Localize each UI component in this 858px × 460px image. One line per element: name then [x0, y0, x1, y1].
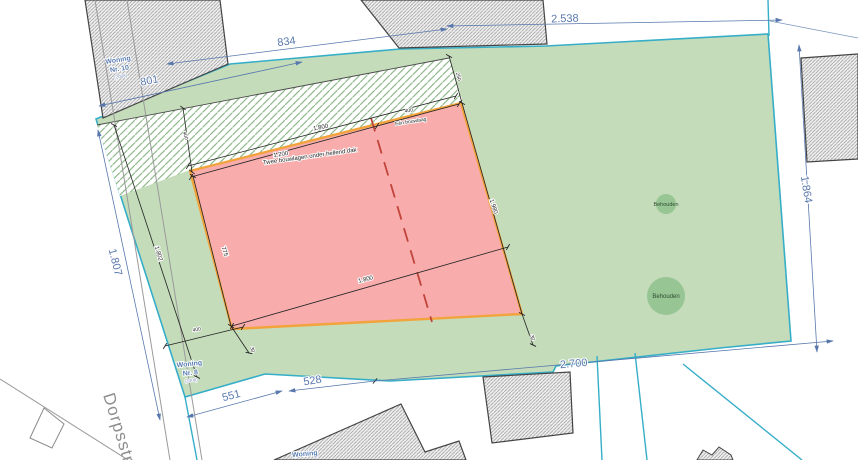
boundary-line-bottom-diagonal	[683, 364, 802, 460]
tree-label-small: Behouden	[653, 202, 678, 208]
site-plan-drawing: 834 801 2.538 1.864 1.807 551 528 2.700 …	[0, 0, 858, 460]
dim-551: 551	[221, 388, 242, 404]
building-top-right	[801, 54, 858, 162]
dim-1807: 1.807	[106, 247, 124, 277]
boundary-line-top-right-vert	[768, 0, 769, 36]
dim-1864: 1.864	[798, 175, 814, 204]
street-name-label: Dorpsstraat	[99, 391, 146, 460]
boundary-line-bottom-a	[597, 356, 602, 460]
dim-2700: 2.700	[560, 357, 588, 371]
dim-834: 834	[277, 35, 297, 49]
building-bottom-edge-partial	[697, 447, 733, 460]
boundary-line-bottom-left	[185, 397, 197, 460]
site-plan-canvas: 834 801 2.538 1.864 1.807 551 528 2.700 …	[0, 0, 858, 460]
dim-528: 528	[303, 374, 323, 389]
boundary-line-bottom-b	[635, 353, 647, 460]
building-outline-road-corner	[30, 408, 64, 448]
tree-label-large: Behouden	[652, 294, 679, 300]
boundary-line-top-right-diag	[770, 21, 858, 38]
building-bottom-square	[483, 372, 573, 443]
building-top-center	[361, 0, 547, 48]
dim-2538: 2.538	[551, 13, 579, 26]
